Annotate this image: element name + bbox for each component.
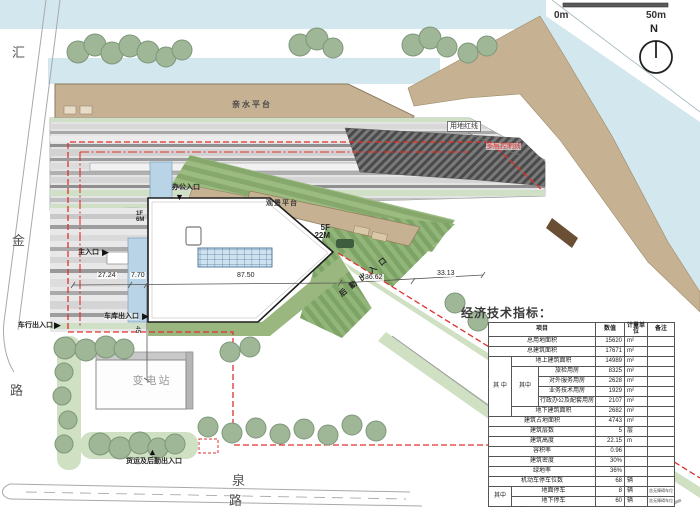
table-row: 建筑密度 30% (489, 456, 675, 466)
street-char-jin: 金 (12, 230, 25, 249)
table-row: 其中 旅检用房 8325 m² (489, 366, 675, 376)
vehicle-entrance-arrow: ▶ (54, 321, 61, 330)
north-label: N (650, 24, 658, 36)
header-value: 数值 (596, 323, 625, 337)
dim-27: 27.24 (97, 272, 117, 279)
table-row: 建筑高度 22.15 m (489, 436, 675, 446)
street-char-lu: 路 (10, 380, 23, 399)
table-row: 容积率 0.96 (489, 446, 675, 456)
sub-group-cell: 其中 (512, 366, 539, 406)
table-row: 绿地率 36% (489, 466, 675, 476)
parking-group-cell: 其中 (489, 486, 512, 506)
table-row: 建筑层数 5 层 (489, 426, 675, 436)
header-unit: 计量单位 (625, 323, 648, 337)
dim-7: 7.70 (130, 272, 146, 279)
table-row: 地下建筑面积 2682 m² (489, 406, 675, 416)
floors-left-label: 1F (136, 211, 143, 217)
control-line-label: 多层控制线 (486, 143, 521, 150)
eco-table-title: 经济技术指标： (461, 304, 552, 321)
office-entrance-arrow: ▼ (175, 193, 184, 202)
street-char-hui: 汇 (12, 42, 25, 61)
skylight-grid (198, 248, 272, 267)
substation-label: 变电站 (122, 376, 182, 388)
main-entrance-arrow: ▶ (102, 248, 109, 257)
group-cell: 其 中 (489, 356, 512, 416)
table-row: 建筑占地面积 4743 m² (489, 416, 675, 426)
bottom-road (3, 484, 423, 506)
dim-36: 36.62 (364, 274, 384, 281)
table-row: 地下停车 60 辆 含无障碍车位 (489, 496, 675, 506)
table-row: 其中 地面停车 8 辆 含无障碍车位 (489, 486, 675, 496)
dim-45: 45 (133, 326, 140, 333)
street-char-lu2: 路 (229, 490, 242, 507)
viewing-platform-label: 观景平台 (266, 200, 298, 207)
scale-fifty-label: 50m (646, 11, 666, 22)
north-arrow (640, 41, 672, 73)
small-green-badge (336, 239, 354, 248)
waterfront-platform-label: 亲水平台 (232, 101, 272, 109)
table-row: 其 中 地上建筑面积 14989 m² (489, 356, 675, 366)
site-plan: 0m 50m N 汇 金 路 泉 路 亲水平台 用地红线 多层控制线 办公入口 … (0, 0, 700, 507)
street-char-quan: 泉 (232, 470, 245, 489)
table-row: 总用地面积 15620 m² (489, 336, 675, 346)
header-note: 备注 (648, 323, 675, 337)
table-row: 机动车停车位数 68 辆 (489, 476, 675, 486)
dim-87: 87.50 (236, 272, 256, 279)
freight-entrance-label: 货运及后勤出入口 (126, 458, 182, 465)
table-header-row: 项目 数值 计量单位 备注 (489, 323, 675, 337)
header-item: 项目 (489, 323, 596, 337)
height-right-label: 22M (314, 231, 330, 240)
eco-indicator-table: 项目 数值 计量单位 备注 总用地面积 15620 m² 总建筑面积 17671… (488, 322, 675, 507)
dim-33: 33.13 (436, 270, 456, 277)
red-line-label: 用地红线 (447, 121, 481, 132)
vehicle-entrance-label: 车行出入口 (18, 322, 53, 329)
garage-entrance-label: 车库出入口 (104, 313, 139, 320)
office-entrance-label: 办公入口 (172, 184, 200, 191)
table-row: 总建筑面积 17671 m² (489, 346, 675, 356)
main-entrance-label: 主入口 (78, 249, 99, 256)
scale-zero-label: 0m (554, 11, 568, 22)
scale-bar (563, 3, 668, 7)
garage-entrance-arrow: ▶ (142, 312, 149, 321)
freight-entrance-arrow: ▲ (148, 448, 157, 457)
height-left-label: 6M (136, 217, 144, 223)
